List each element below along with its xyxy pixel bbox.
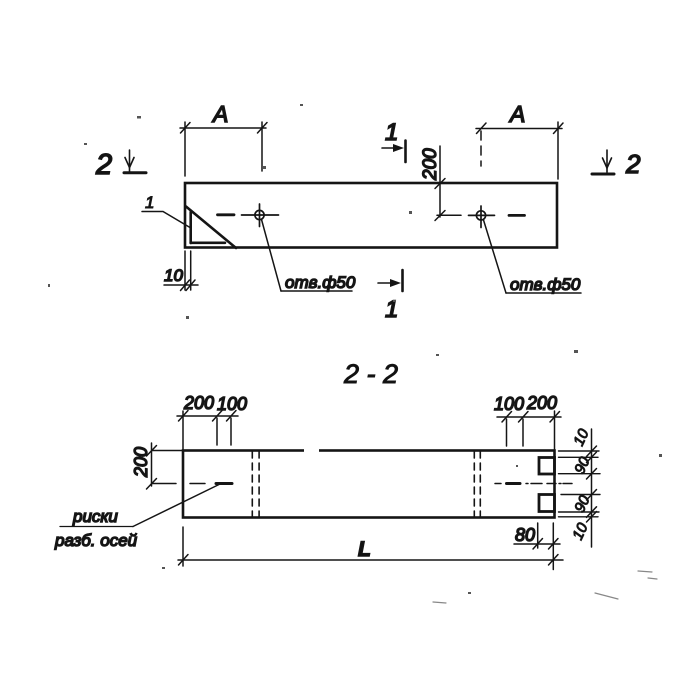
svg-text:1: 1 xyxy=(385,296,398,323)
svg-text:10: 10 xyxy=(164,266,183,285)
svg-text:1: 1 xyxy=(145,193,154,212)
svg-text:10: 10 xyxy=(569,520,592,543)
svg-text:отв.ф50: отв.ф50 xyxy=(510,275,581,294)
svg-text:2: 2 xyxy=(95,149,112,181)
svg-text:2 - 2: 2 - 2 xyxy=(343,359,398,389)
svg-text:разб. осей: разб. осей xyxy=(54,531,138,550)
svg-text:1: 1 xyxy=(385,119,398,146)
svg-text:200: 200 xyxy=(420,148,441,181)
svg-text:80: 80 xyxy=(515,525,535,545)
svg-text:200: 200 xyxy=(183,393,214,413)
svg-text:100: 100 xyxy=(494,394,524,414)
svg-text:A: A xyxy=(211,101,228,127)
svg-text:L: L xyxy=(358,538,371,561)
svg-text:2: 2 xyxy=(625,149,641,179)
svg-text:A: A xyxy=(508,101,525,127)
svg-text:100: 100 xyxy=(217,394,247,414)
svg-text:200: 200 xyxy=(526,393,557,413)
svg-text:риски: риски xyxy=(72,507,118,526)
svg-text:200: 200 xyxy=(131,447,151,478)
svg-text:отв.ф50: отв.ф50 xyxy=(285,273,356,292)
svg-text:10: 10 xyxy=(570,426,593,449)
